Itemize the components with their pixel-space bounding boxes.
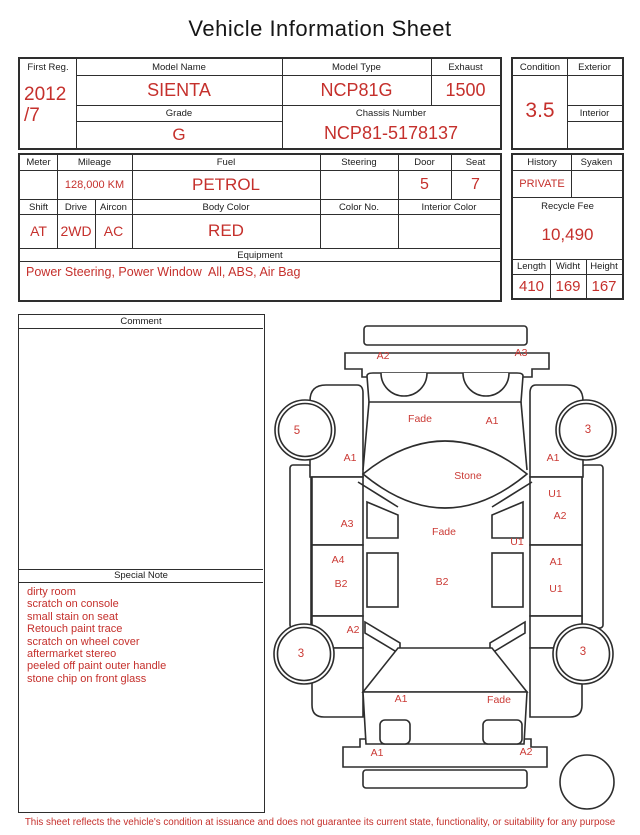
special-note-list: dirty roomscratch on consolesmall stain … — [27, 586, 257, 685]
equipment-label: Equipment — [20, 249, 500, 261]
meter-value — [20, 171, 57, 198]
left-taillight — [380, 720, 410, 744]
special-note-line: scratch on console — [27, 598, 257, 610]
left-sill — [290, 465, 311, 628]
exterior-value — [567, 76, 622, 104]
exhaust-label: Exhaust — [431, 61, 500, 74]
damage-label-a2: A2 — [347, 624, 360, 636]
vehicle-identity-table: First Reg. 2012 /7 Model Name SIENTA Mod… — [18, 57, 502, 150]
interior-color-label: Interior Color — [398, 201, 500, 214]
damage-label-a1: A1 — [550, 556, 563, 568]
wheel-grade-label-3: 3 — [580, 646, 586, 658]
rear-group — [343, 692, 547, 788]
damage-label-a1: A1 — [547, 452, 560, 464]
damage-label-a1: A1 — [395, 693, 408, 705]
car-damage-diagram: A2A3FadeA1A1A1StoneU1A2A3FadeU1A4A1B2B2U… — [270, 310, 640, 815]
body-color-label: Body Color — [132, 201, 320, 214]
damage-label-fade: Fade — [487, 694, 511, 706]
damage-label-b2: B2 — [436, 576, 449, 588]
damage-label-a2: A2 — [554, 510, 567, 522]
condition-table: Condition 3.5 Exterior Interior — [511, 57, 624, 150]
fuel-value: PETROL — [132, 171, 320, 198]
height-label: Height — [586, 260, 622, 273]
body-color-value: RED — [132, 216, 320, 246]
comment-text — [27, 333, 255, 347]
interior-value — [567, 122, 622, 147]
left-door-panel-a3 — [312, 477, 363, 545]
door-label: Door — [398, 156, 451, 169]
meter-label: Meter — [20, 156, 57, 169]
history-label: History — [513, 156, 571, 169]
color-no-label: Color No. — [320, 201, 398, 214]
wheel-grade-label-3: 3 — [585, 424, 591, 436]
damage-label-u1: U1 — [548, 488, 562, 500]
damage-label-u1: U1 — [510, 536, 524, 548]
model-name-value: SIENTA — [76, 76, 282, 104]
drive-value: 2WD — [57, 216, 95, 246]
right-sill — [582, 465, 603, 628]
steering-value — [320, 171, 398, 198]
special-note-line: Retouch paint trace — [27, 623, 257, 635]
damage-label-a1: A1 — [371, 747, 384, 759]
rear-bottom-bar — [363, 770, 527, 788]
wheel-grade-label-5: 5 — [294, 425, 300, 437]
exterior-label: Exterior — [567, 61, 622, 74]
door-value: 5 — [398, 171, 451, 198]
left-roof-rail — [367, 553, 398, 607]
grade-label: Grade — [76, 107, 282, 120]
left-c-pillar — [365, 622, 400, 654]
comment-note-panel: Comment Special Note — [18, 314, 265, 813]
damage-label-a1: A1 — [344, 452, 357, 464]
seat-label: Seat — [451, 156, 500, 169]
exhaust-value: 1500 — [431, 76, 500, 104]
history-fee-table: History PRIVATE Syaken Recycle Fee 10,49… — [511, 153, 624, 300]
damage-label-a3: A3 — [515, 347, 528, 359]
interior-label: Interior — [567, 107, 622, 120]
interior-color-value — [398, 216, 500, 246]
model-type-label: Model Type — [282, 61, 431, 74]
aircon-value: AC — [95, 216, 132, 246]
mileage-value: 128,000 KM — [57, 171, 132, 198]
right-roof-rail — [492, 553, 523, 607]
first-reg-value: 2012 /7 — [24, 81, 76, 129]
mileage-label: Mileage — [57, 156, 132, 169]
right-a-pillar-line — [521, 402, 527, 470]
height-value: 167 — [586, 275, 622, 297]
damage-label-a4: A4 — [332, 554, 345, 566]
special-note-line: peeled off paint outer handle — [27, 660, 257, 672]
comment-label: Comment — [19, 315, 263, 328]
spare-tire — [560, 755, 614, 809]
condition-label: Condition — [513, 61, 567, 74]
front-top-bar — [364, 326, 527, 345]
length-value: 410 — [513, 275, 550, 297]
damage-label-fade: Fade — [408, 413, 432, 425]
special-note-line: stone chip on front glass — [27, 673, 257, 685]
left-b-pillar-quad — [367, 502, 398, 538]
syaken-value — [571, 171, 622, 196]
model-name-label: Model Name — [76, 61, 282, 74]
damage-label-a1: A1 — [486, 415, 499, 427]
history-value: PRIVATE — [513, 171, 571, 196]
special-note-label: Special Note — [19, 569, 263, 582]
disclaimer-text: This sheet reflects the vehicle's condit… — [0, 817, 640, 828]
shift-label: Shift — [20, 201, 57, 214]
special-note-line: small stain on seat — [27, 611, 257, 623]
special-note-line: aftermarket stereo — [27, 648, 257, 660]
vehicle-information-sheet: Vehicle Information Sheet First Reg. 201… — [0, 0, 640, 835]
damage-label-stone: Stone — [454, 470, 482, 482]
model-type-value: NCP81G — [282, 76, 431, 104]
front-left-wheel-inner — [279, 404, 332, 457]
right-c-pillar — [490, 622, 525, 654]
damage-label-a3: A3 — [341, 518, 354, 530]
damage-label-b2: B2 — [335, 578, 348, 590]
right-b-pillar-quad — [492, 502, 523, 538]
equipment-value: Power Steering, Power Window All, ABS, A… — [26, 264, 496, 280]
grade-value: G — [76, 122, 282, 147]
damage-label-u1: U1 — [549, 583, 563, 595]
windshield-lens — [363, 441, 527, 508]
seat-value: 7 — [451, 171, 500, 198]
width-label: Widht — [550, 260, 586, 273]
first-reg-label: First Reg. — [20, 61, 76, 74]
length-label: Length — [513, 260, 550, 273]
syaken-label: Syaken — [571, 156, 622, 169]
drive-label: Drive — [57, 201, 95, 214]
wheel-grade-label-3: 3 — [298, 648, 304, 660]
right-taillight — [483, 720, 522, 744]
color-no-value — [320, 216, 398, 246]
condition-value: 3.5 — [513, 76, 567, 146]
recycle-fee-value: 10,490 — [513, 215, 622, 255]
page-title: Vehicle Information Sheet — [0, 16, 640, 42]
left-a-pillar-line — [363, 402, 369, 470]
rear-window — [363, 648, 527, 692]
steering-label: Steering — [320, 156, 398, 169]
fuel-label: Fuel — [132, 156, 320, 169]
special-note-line: dirty room — [27, 586, 257, 598]
shift-value: AT — [20, 216, 57, 246]
width-value: 169 — [550, 275, 586, 297]
damage-label-fade: Fade — [432, 526, 456, 538]
special-note-line: scratch on wheel cover — [27, 636, 257, 648]
recycle-fee-label: Recycle Fee — [513, 200, 622, 213]
chassis-number-label: Chassis Number — [282, 107, 500, 120]
aircon-label: Aircon — [95, 201, 132, 214]
damage-label-a2: A2 — [520, 746, 533, 758]
damage-label-a2: A2 — [377, 350, 390, 362]
chassis-number-value: NCP81-5178137 — [282, 120, 500, 147]
vehicle-spec-table: Meter Mileage 128,000 KM Fuel PETROL Ste… — [18, 153, 502, 302]
